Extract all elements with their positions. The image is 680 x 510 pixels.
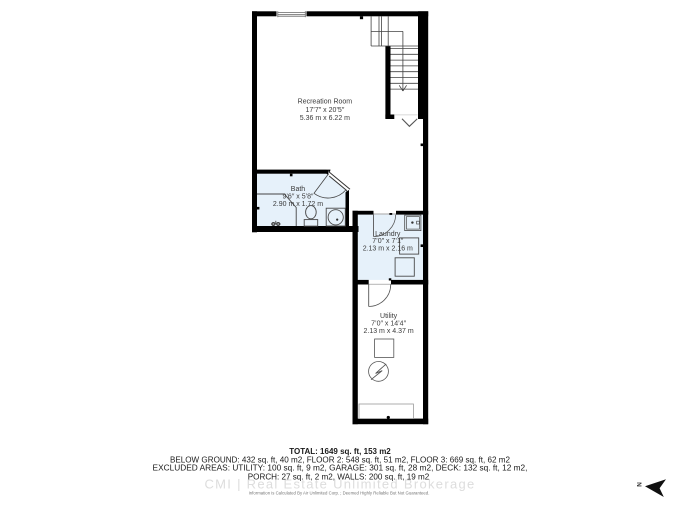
- svg-text:Laundry: Laundry: [375, 231, 401, 238]
- svg-text:2.90 m x 1.72 m: 2.90 m x 1.72 m: [273, 201, 323, 208]
- svg-text:Utility: Utility: [380, 313, 398, 320]
- svg-text:9’6″ x 5’8″: 9’6″ x 5’8″: [282, 193, 314, 200]
- svg-text:7’0″ x 7’1″: 7’0″ x 7’1″: [372, 238, 404, 245]
- svg-text:17’7″ x 20’5″: 17’7″ x 20’5″: [305, 107, 344, 114]
- svg-text:EXCLUDED AREAS: UTILITY: 100 s: EXCLUDED AREAS: UTILITY: 100 sq. ft, 9 m…: [153, 463, 528, 473]
- svg-text:7’0″ x 14’4″: 7’0″ x 14’4″: [371, 321, 406, 328]
- svg-text:Bath: Bath: [291, 186, 306, 193]
- svg-text:Information is Calculated By A: Information is Calculated By Air Unlimit…: [249, 491, 430, 496]
- svg-text:2.13 m x 4.37 m: 2.13 m x 4.37 m: [363, 328, 413, 335]
- svg-text:5.36 m x 6.22 m: 5.36 m x 6.22 m: [300, 115, 350, 122]
- svg-text:Recreation Room: Recreation Room: [298, 99, 353, 106]
- svg-text:PORCH: 27 sq. ft, 2 m2, WALLS:: PORCH: 27 sq. ft, 2 m2, WALLS: 200 sq. f…: [248, 472, 430, 481]
- svg-text:N: N: [635, 482, 642, 487]
- svg-text:2.13 m x 2.16 m: 2.13 m x 2.16 m: [363, 245, 413, 252]
